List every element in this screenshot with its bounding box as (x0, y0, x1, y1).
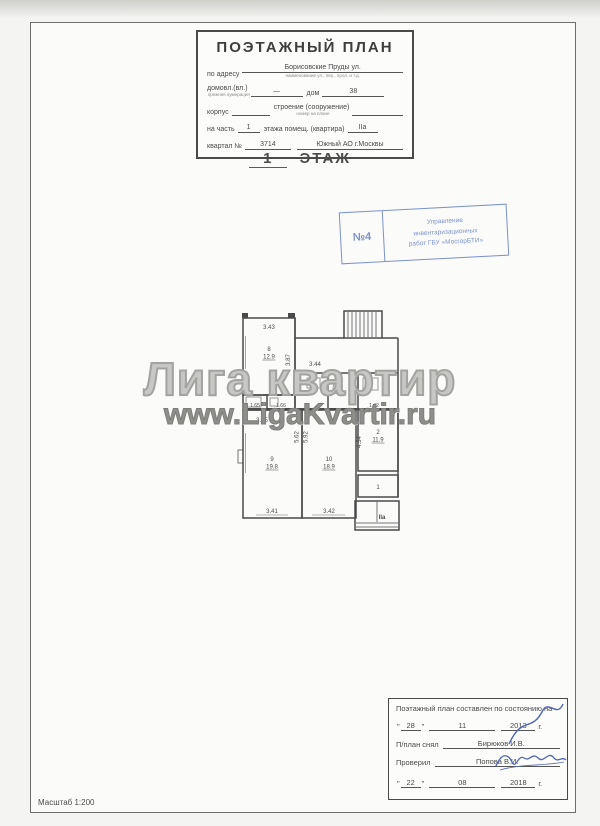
district-value: Южный АО г.Москвы (297, 140, 403, 150)
room-10-num: 10 (326, 457, 333, 463)
part-premise-value: IIа (348, 123, 378, 133)
room-10-area: 18.9 (323, 465, 335, 471)
dim-porch: 1.42 (369, 403, 379, 409)
floor-word: ЭТАЖ (300, 150, 351, 167)
house-label: дом (307, 90, 320, 97)
building-value (232, 107, 270, 116)
address-caption: наименование ул., пер., прол. и т.д. (242, 74, 403, 78)
date1-day: 28 (401, 721, 421, 731)
date1-year: 2013 (501, 721, 535, 731)
stamp-text: Управление инвентаризационных работ ГБУ … (383, 205, 508, 261)
room-8-area: 12.9 (263, 355, 275, 361)
dim-v9: 5.62 (295, 431, 301, 443)
footer-title: Поэтажный план составлен по состоянию на (396, 704, 560, 713)
structure-caption: номер на плане (274, 112, 353, 116)
header-form: ПОЭТАЖНЫЙ ПЛАН по адресу Борисовские Пру… (196, 30, 414, 159)
address-row: по адресу Борисовские Пруды ул. наименов… (207, 63, 403, 78)
stair-hatch (348, 312, 376, 337)
dim-wc: 1.65 (250, 403, 260, 409)
footer-surveyed-row: П/план снял Бирюков И.В. (396, 739, 560, 749)
address-value: Борисовские Пруды ул. (242, 63, 403, 73)
stamp-number: №4 (340, 211, 386, 263)
scan-edge-shadow (0, 0, 600, 18)
surveyed-value: Бирюков И.В. (443, 739, 560, 749)
part-mid-label: этажа помещ. (квартира) (264, 126, 345, 133)
room-2-num: 2 (376, 430, 380, 436)
block-label: квартал № (207, 143, 242, 150)
footer-checked-row: Проверил Попова В.И. (396, 757, 560, 767)
quote-open2: " (397, 779, 400, 788)
dim-mid: 3.65 (256, 418, 268, 424)
dim-w9: 3.41 (266, 509, 278, 515)
structure-value (352, 107, 403, 116)
scale-note: Масштаб 1:200 (38, 798, 94, 807)
building-label: корпус (207, 109, 229, 116)
date2-day: 22 (401, 778, 421, 788)
footer-date1-row: " 28 " 11 2013 г. (396, 721, 560, 731)
ownership-label: домовл.(вл.) (207, 85, 248, 92)
room-9-num: 9 (270, 457, 274, 463)
part-row: на часть 1 этажа помещ. (квартира) IIа (207, 123, 403, 133)
part-value: 1 (238, 123, 260, 133)
room-9-walls (243, 410, 302, 518)
date2-month: 08 (429, 778, 495, 788)
footer-table: Поэтажный план составлен по состоянию на… (388, 698, 568, 800)
date2-suffix: г. (538, 779, 542, 788)
dim-w10: 3.42 (323, 509, 335, 515)
structure-label: строение (сооружение) (274, 104, 350, 111)
floor-number: 1 (249, 150, 287, 168)
porch-steps (356, 502, 398, 527)
ownership-caption: прежняя нумерация (207, 93, 251, 97)
part-label: на часть (207, 126, 235, 133)
house-value: 38 (322, 87, 384, 97)
building-row: корпус строение (сооружение) номер на пл… (207, 104, 403, 116)
ownership-value: — (251, 87, 303, 97)
room-2-area: 11.9 (372, 438, 384, 444)
block-value: 3714 (245, 140, 291, 150)
floor-plan-svg: 3.43 3.87 8 12.9 3.44 1.65 1.66 3.65 5.6… (232, 308, 404, 540)
area-underlines (263, 360, 385, 470)
dim-h8: 3.87 (286, 354, 292, 366)
dim-w8: 3.43 (263, 325, 275, 331)
bti-stamp: №4 Управление инвентаризационных работ Г… (339, 204, 509, 265)
dim-bath: 1.66 (276, 403, 286, 409)
ownership-row: домовл.(вл.) прежняя нумерация — дом 38 (207, 85, 403, 97)
dim-v10: 5.92 (304, 431, 310, 443)
quote-close: " (422, 722, 425, 731)
quote-open: " (397, 722, 400, 731)
date2-year: 2018 (501, 778, 535, 788)
date1-suffix: г. (538, 722, 542, 731)
date1-month: 11 (429, 721, 495, 731)
room-9-area: 19.8 (266, 465, 278, 471)
wall-stub-right (288, 313, 295, 318)
footer-date2-row: " 22 " 08 2018 г. (396, 778, 560, 788)
wall-stub-left (242, 313, 248, 318)
quote-close2: " (422, 779, 425, 788)
room-10-walls (302, 410, 356, 518)
room-8-num: 8 (267, 347, 271, 353)
plan-labels: 3.43 3.87 8 12.9 3.44 1.65 1.66 3.65 5.6… (250, 325, 386, 521)
dim-h2: 4.34 (357, 436, 363, 448)
checked-label: Проверил (396, 758, 431, 767)
dim-hall: 3.44 (309, 362, 321, 368)
floor-plan: 3.43 3.87 8 12.9 3.44 1.65 1.66 3.65 5.6… (232, 308, 404, 540)
premise-label-red: IIа (379, 515, 386, 521)
surveyed-label: П/план снял (396, 740, 439, 749)
address-label: по адресу (207, 71, 239, 78)
room-1-num: 1 (376, 485, 380, 491)
form-title: ПОЭТАЖНЫЙ ПЛАН (207, 39, 403, 56)
floor-heading: 1 ЭТАЖ (0, 150, 600, 167)
checked-value: Попова В.И. (435, 757, 560, 767)
block-row: квартал № 3714 Южный АО г.Москвы (207, 140, 403, 150)
